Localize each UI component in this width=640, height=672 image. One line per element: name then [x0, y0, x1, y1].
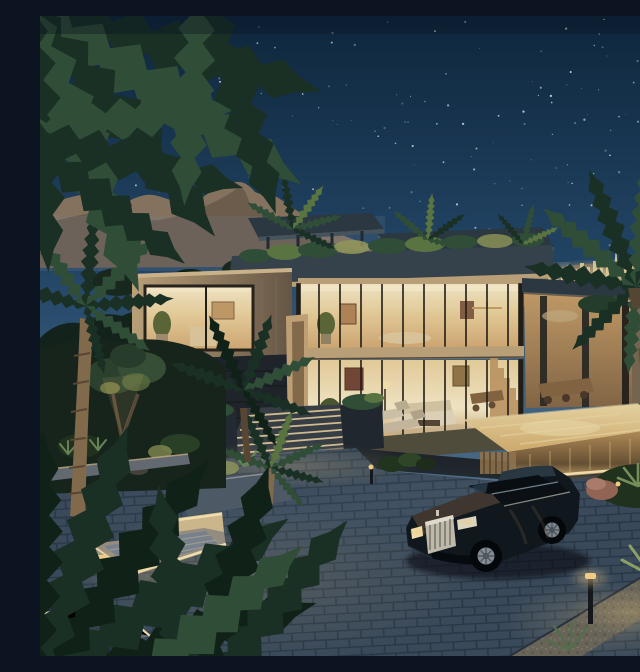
- villa-night-render: Photorealistic night render of a modern …: [40, 16, 640, 656]
- vignette: [40, 16, 640, 656]
- scene-canvas: [40, 16, 640, 656]
